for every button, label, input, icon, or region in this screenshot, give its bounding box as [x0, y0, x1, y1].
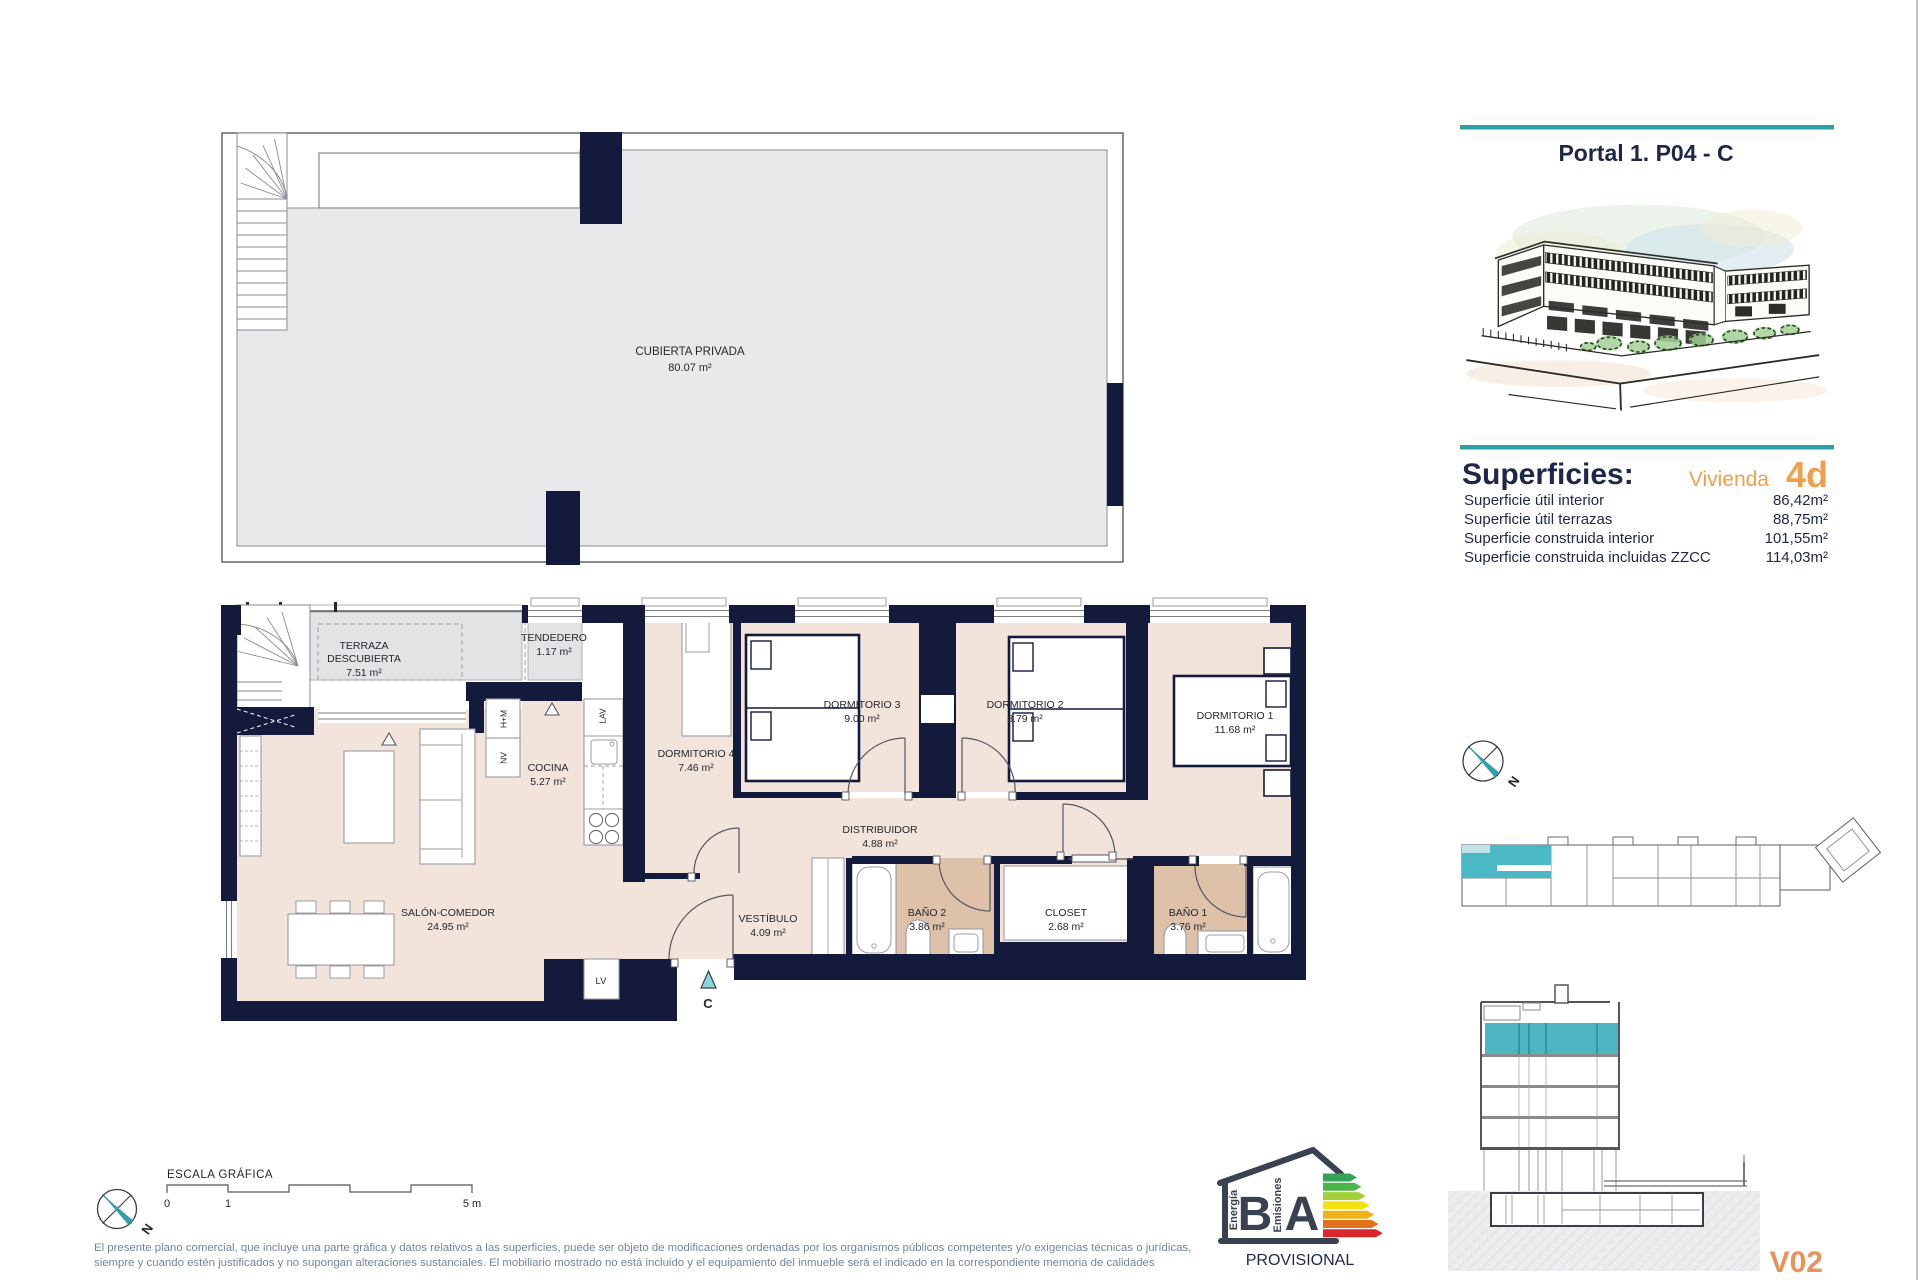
svg-text:86,42m²: 86,42m²	[1773, 492, 1828, 509]
svg-text:BAÑO 2: BAÑO 2	[908, 906, 947, 919]
svg-text:PROVISIONAL: PROVISIONAL	[1246, 1252, 1355, 1269]
svg-text:TENDEDERO: TENDEDERO	[521, 632, 587, 644]
svg-text:DORMITORIO 4: DORMITORIO 4	[658, 748, 735, 760]
svg-text:4.09 m²: 4.09 m²	[750, 927, 786, 939]
svg-text:9.00 m²: 9.00 m²	[844, 713, 880, 725]
svg-text:Superficie construida interior: Superficie construida interior	[1464, 530, 1654, 547]
svg-text:SALÓN-COMEDOR: SALÓN-COMEDOR	[401, 906, 495, 919]
svg-text:8.79 m²: 8.79 m²	[1007, 713, 1043, 725]
svg-text:80.07 m²: 80.07 m²	[668, 362, 712, 374]
svg-text:1: 1	[225, 1198, 231, 1210]
svg-text:0: 0	[164, 1198, 170, 1210]
svg-text:4d: 4d	[1786, 454, 1828, 495]
svg-text:7.51 m²: 7.51 m²	[346, 667, 382, 679]
svg-text:El presente plano comercial, q: El presente plano comercial, que incluye…	[94, 1242, 1191, 1254]
svg-text:5 m: 5 m	[463, 1198, 481, 1210]
svg-text:V02: V02	[1770, 1246, 1823, 1279]
svg-text:LAV: LAV	[597, 708, 607, 724]
svg-text:Portal 1. P04 - C: Portal 1. P04 - C	[1558, 140, 1733, 166]
svg-text:Energía: Energía	[1228, 1189, 1240, 1230]
svg-text:Emisiones: Emisiones	[1272, 1177, 1284, 1232]
svg-text:Superficie útil terrazas: Superficie útil terrazas	[1464, 511, 1612, 528]
svg-text:DORMITORIO 2: DORMITORIO 2	[987, 699, 1064, 711]
svg-text:3.86 m²: 3.86 m²	[909, 921, 945, 933]
svg-text:101,55m²: 101,55m²	[1765, 530, 1828, 547]
svg-text:Superficie construida incluida: Superficie construida incluidas ZZCC	[1464, 549, 1711, 566]
svg-text:11.68 m²: 11.68 m²	[1215, 724, 1256, 736]
svg-text:114,03m²: 114,03m²	[1766, 549, 1828, 566]
svg-text:Vivienda: Vivienda	[1689, 468, 1769, 491]
svg-text:24.95 m²: 24.95 m²	[427, 921, 469, 933]
svg-text:4.88 m²: 4.88 m²	[862, 838, 898, 850]
svg-text:2.68 m²: 2.68 m²	[1048, 921, 1084, 933]
svg-text:Superficie útil interior: Superficie útil interior	[1464, 492, 1604, 509]
svg-text:DESCUBIERTA: DESCUBIERTA	[327, 653, 401, 665]
svg-text:DISTRIBUIDOR: DISTRIBUIDOR	[842, 824, 918, 836]
svg-text:siempre y cuando estén justifi: siempre y cuando estén justificados y no…	[94, 1257, 1155, 1269]
svg-text:5.27 m²: 5.27 m²	[530, 776, 566, 788]
svg-text:VESTÍBULO: VESTÍBULO	[739, 912, 798, 925]
svg-text:CUBIERTA PRIVADA: CUBIERTA PRIVADA	[635, 346, 745, 358]
svg-text:DORMITORIO 1: DORMITORIO 1	[1197, 710, 1274, 722]
svg-text:CLOSET: CLOSET	[1045, 907, 1088, 919]
svg-text:3.76 m²: 3.76 m²	[1170, 921, 1206, 933]
svg-text:TERRAZA: TERRAZA	[339, 640, 388, 652]
svg-text:LV: LV	[596, 976, 608, 987]
svg-text:NV: NV	[498, 752, 508, 764]
svg-text:1.17 m²: 1.17 m²	[536, 646, 572, 658]
svg-text:C: C	[703, 996, 713, 1011]
svg-text:88,75m²: 88,75m²	[1773, 511, 1828, 528]
svg-text:A: A	[1285, 1188, 1320, 1241]
svg-text:B: B	[1238, 1188, 1273, 1241]
svg-text:DORMITORIO 3: DORMITORIO 3	[824, 699, 901, 711]
svg-text:ESCALA GRÁFICA: ESCALA GRÁFICA	[167, 1168, 273, 1181]
svg-text:COCINA: COCINA	[528, 762, 569, 774]
svg-text:H+M: H+M	[498, 710, 508, 728]
svg-text:7.46 m²: 7.46 m²	[678, 762, 714, 774]
svg-text:BAÑO 1: BAÑO 1	[1169, 906, 1208, 919]
svg-text:Superficies:: Superficies:	[1462, 458, 1634, 491]
